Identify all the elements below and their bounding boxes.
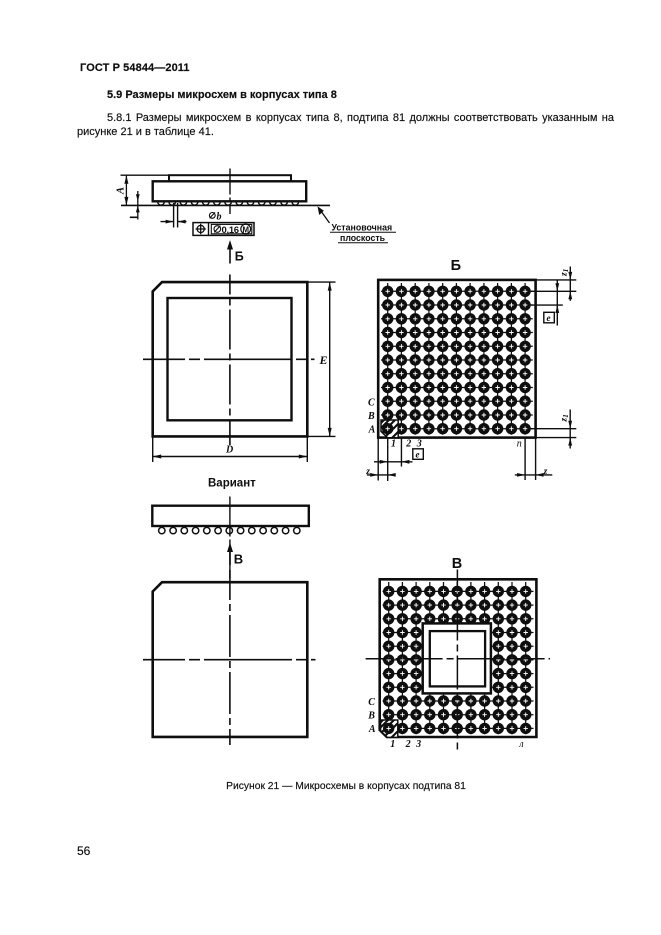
svg-text:b: b xyxy=(217,211,222,222)
svg-text:z1: z1 xyxy=(560,414,571,422)
svg-text:В: В xyxy=(452,556,462,572)
svg-text:В: В xyxy=(367,411,375,422)
svg-text:3: 3 xyxy=(416,439,422,450)
svg-text:0,16: 0,16 xyxy=(222,225,239,236)
svg-text:А: А xyxy=(368,724,376,735)
svg-text:Вариант: Вариант xyxy=(208,478,256,490)
svg-text:1: 1 xyxy=(391,439,396,450)
svg-text:Б: Б xyxy=(451,258,461,274)
svg-text:A: A xyxy=(116,187,127,195)
svg-text:Б: Б xyxy=(235,250,244,264)
svg-text:3: 3 xyxy=(415,739,421,750)
svg-text:z1: z1 xyxy=(560,269,571,277)
svg-text:C: C xyxy=(368,697,375,708)
svg-text:л: л xyxy=(518,739,524,750)
svg-text:E: E xyxy=(319,353,328,367)
svg-text:z: z xyxy=(543,467,548,477)
svg-text:M: M xyxy=(242,225,249,234)
svg-text:плоскость: плоскость xyxy=(340,233,386,243)
svg-text:В: В xyxy=(234,552,243,567)
svg-text:e: e xyxy=(416,449,420,459)
svg-text:2: 2 xyxy=(405,739,411,750)
svg-text:z: z xyxy=(365,467,370,477)
svg-text:Установочная: Установочная xyxy=(332,222,393,232)
svg-text:А: А xyxy=(368,425,376,436)
svg-text:В: В xyxy=(367,711,375,722)
svg-text:n: n xyxy=(517,439,522,450)
svg-text:e: e xyxy=(547,313,551,323)
svg-text:2: 2 xyxy=(405,439,411,450)
svg-text:1: 1 xyxy=(390,739,395,750)
svg-text:D: D xyxy=(225,445,233,456)
svg-text:C: C xyxy=(368,397,375,408)
